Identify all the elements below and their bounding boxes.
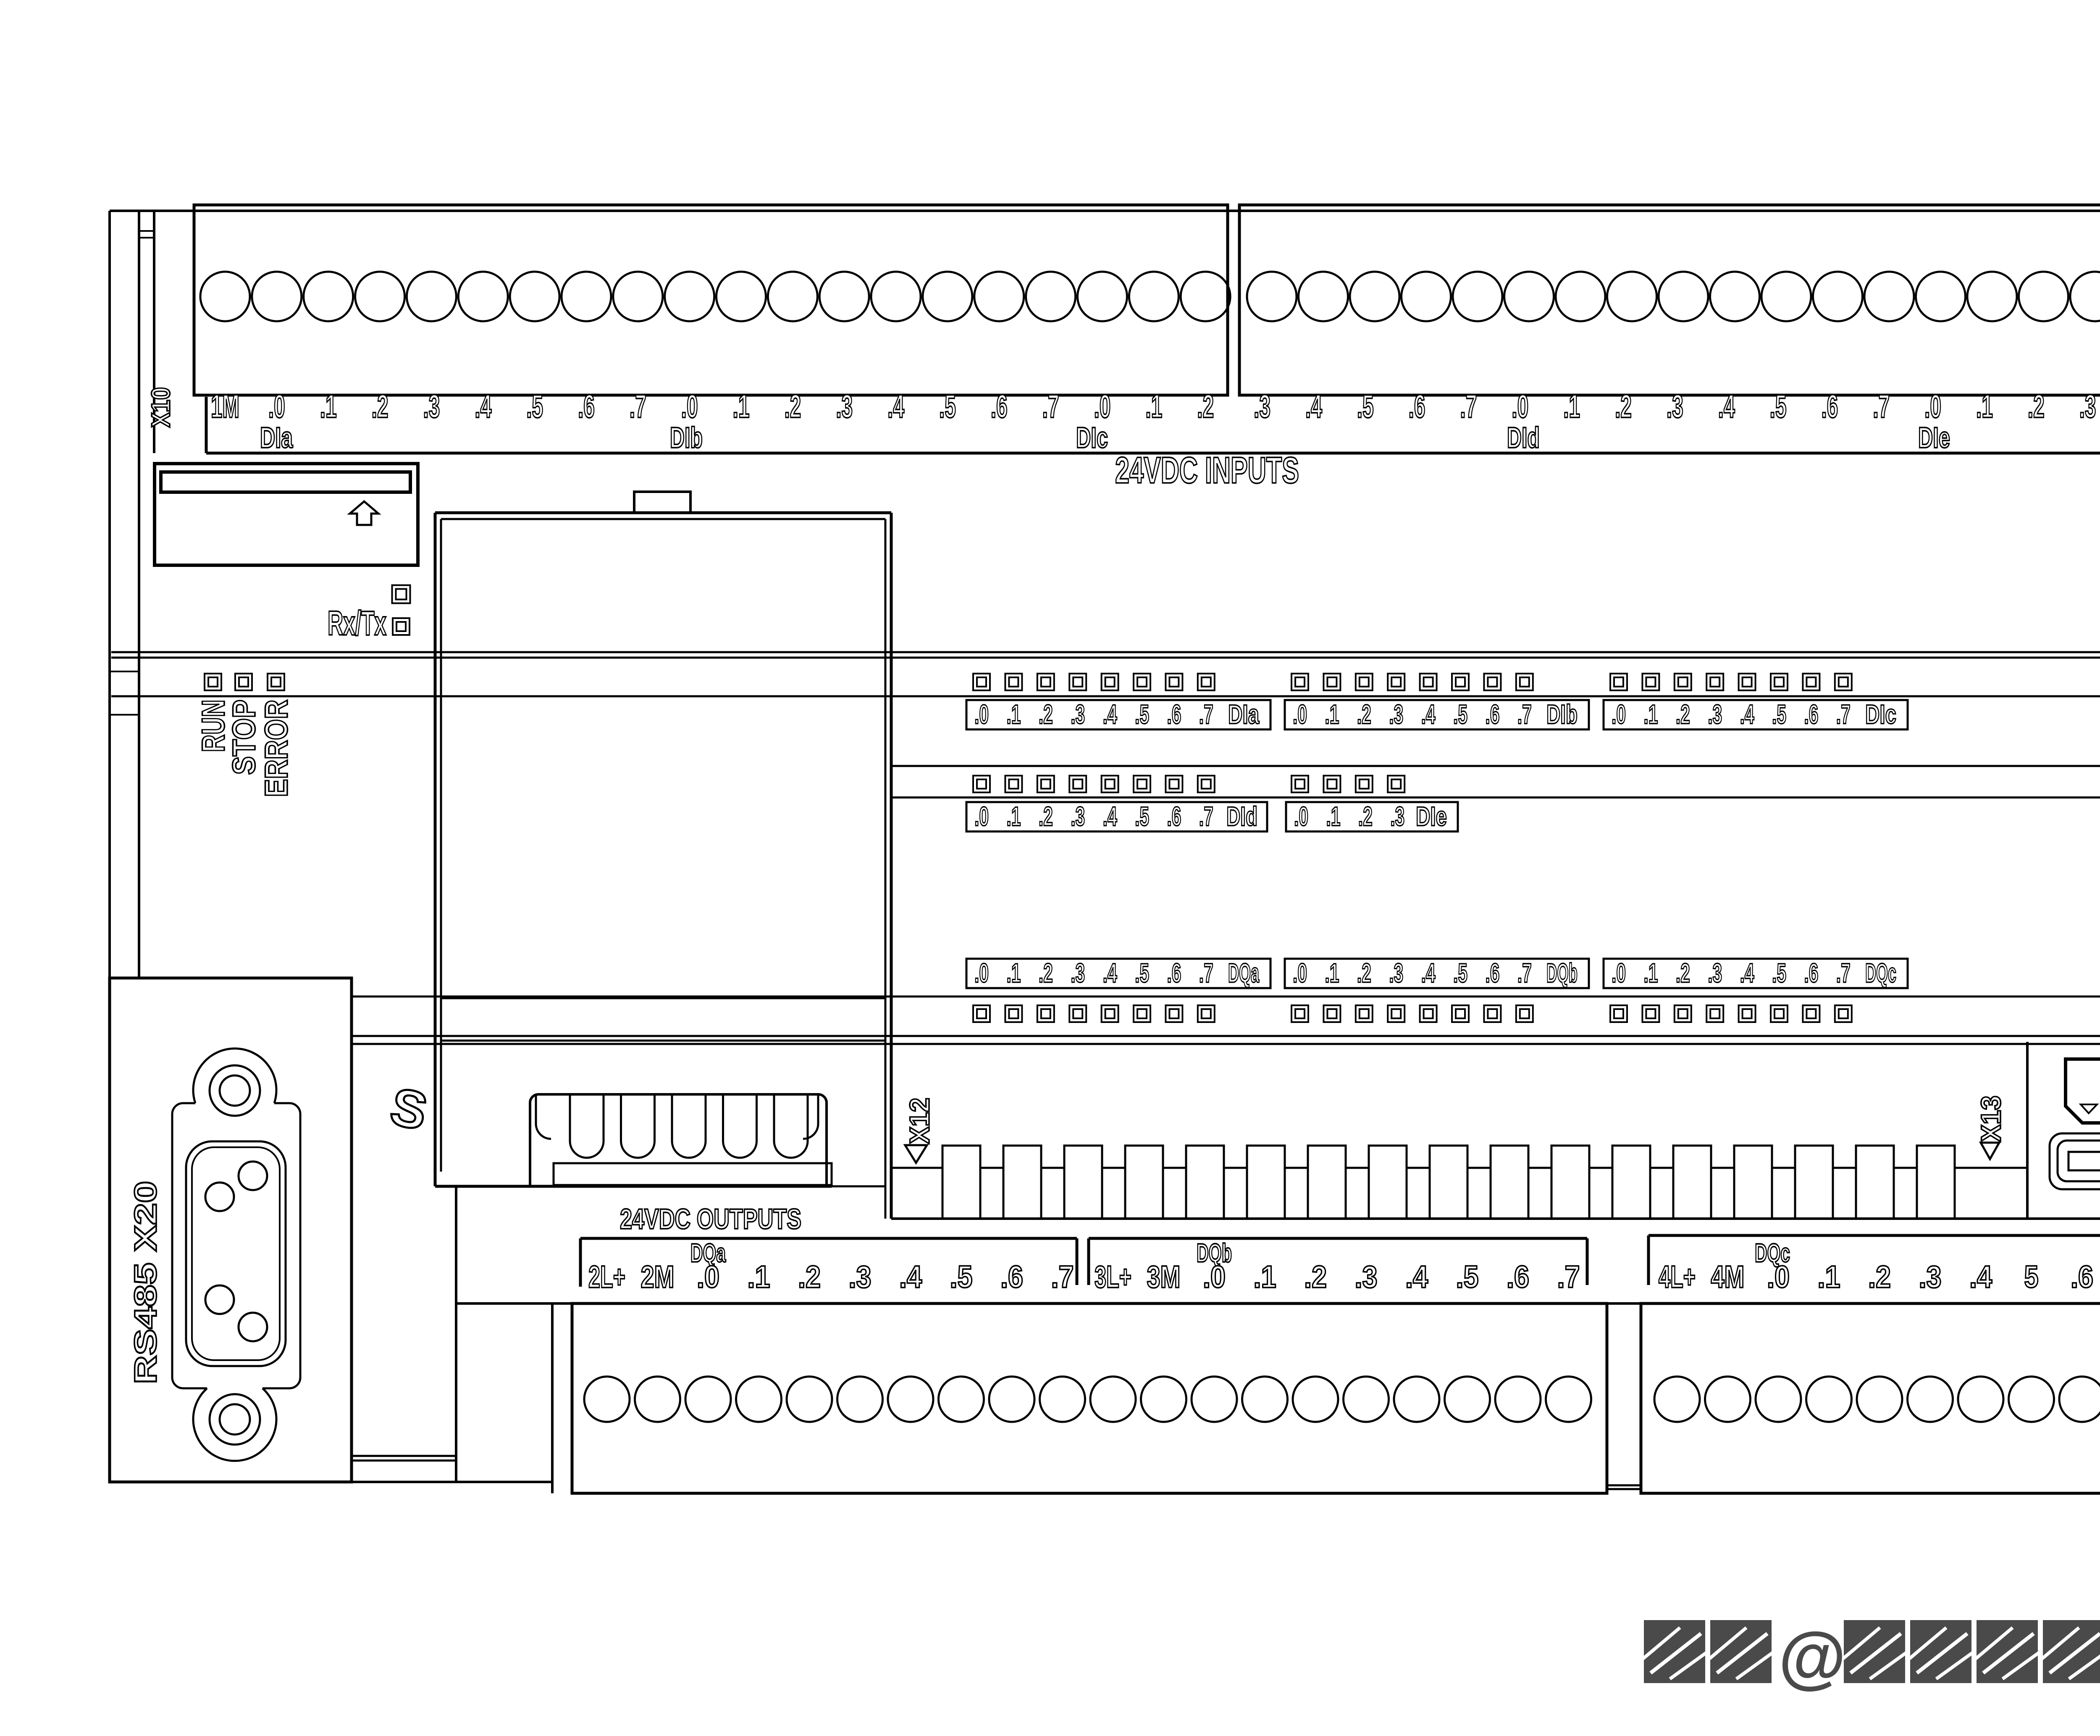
svg-text:.7: .7 bbox=[1557, 1259, 1580, 1294]
svg-text:.2: .2 bbox=[798, 1259, 821, 1294]
svg-text:.0: .0 bbox=[697, 1259, 719, 1294]
svg-text:DIb: DIb bbox=[670, 421, 703, 454]
svg-text:.3: .3 bbox=[1389, 958, 1403, 988]
svg-text:.1: .1 bbox=[1006, 801, 1021, 831]
svg-text:.3: .3 bbox=[1919, 1259, 1942, 1294]
svg-text:.5: .5 bbox=[1135, 958, 1149, 988]
svg-text:.3: .3 bbox=[1071, 958, 1085, 988]
svg-text:.0: .0 bbox=[1293, 958, 1307, 988]
svg-text:.3: .3 bbox=[2079, 388, 2096, 425]
svg-text:.1: .1 bbox=[1643, 699, 1658, 729]
svg-text:DId: DId bbox=[1507, 421, 1540, 454]
svg-text:2M: 2M bbox=[641, 1259, 675, 1294]
svg-text:.2: .2 bbox=[1357, 958, 1371, 988]
svg-text:.5: .5 bbox=[1456, 1259, 1479, 1294]
svg-text:DIc: DIc bbox=[1076, 421, 1108, 454]
svg-text:DIe: DIe bbox=[1918, 421, 1950, 454]
svg-text:.6: .6 bbox=[1167, 958, 1181, 988]
svg-text:.2: .2 bbox=[1357, 699, 1371, 729]
svg-text:.0: .0 bbox=[1612, 699, 1626, 729]
svg-text:.7: .7 bbox=[1199, 801, 1213, 831]
svg-text:.3: .3 bbox=[1708, 958, 1722, 988]
svg-text:@: @ bbox=[1779, 1618, 1846, 1695]
svg-text:.7: .7 bbox=[1517, 958, 1532, 988]
svg-text:.2: .2 bbox=[2028, 388, 2045, 425]
svg-text:.6: .6 bbox=[578, 388, 595, 425]
svg-text:.1: .1 bbox=[1006, 699, 1021, 729]
svg-text:.0: .0 bbox=[1203, 1259, 1226, 1294]
svg-text:DId: DId bbox=[1226, 801, 1257, 831]
svg-text:.6: .6 bbox=[1804, 699, 1818, 729]
svg-text:.0: .0 bbox=[1767, 1259, 1790, 1294]
svg-text:.7: .7 bbox=[1051, 1259, 1074, 1294]
svg-text:.3: .3 bbox=[423, 388, 440, 425]
svg-text:.2: .2 bbox=[1039, 699, 1053, 729]
svg-text:.5: .5 bbox=[526, 388, 543, 425]
svg-text:.7: .7 bbox=[1042, 388, 1059, 425]
svg-text:.2: .2 bbox=[1304, 1259, 1327, 1294]
svg-text:.7: .7 bbox=[1460, 388, 1477, 425]
svg-text:.5: .5 bbox=[1453, 699, 1467, 729]
svg-text:DQa: DQa bbox=[1228, 958, 1259, 988]
svg-text:.5: .5 bbox=[1135, 801, 1149, 831]
svg-text:.1: .1 bbox=[1818, 1259, 1840, 1294]
svg-text:.0: .0 bbox=[974, 699, 989, 729]
svg-text:.4: .4 bbox=[887, 388, 904, 425]
svg-text:.1: .1 bbox=[733, 388, 750, 425]
svg-text:24VDC INPUTS: 24VDC INPUTS bbox=[1115, 449, 1299, 491]
svg-text:.6: .6 bbox=[1821, 388, 1838, 425]
svg-text:.7: .7 bbox=[1199, 958, 1213, 988]
svg-text:.4: .4 bbox=[1103, 958, 1117, 988]
svg-text:.2: .2 bbox=[1197, 388, 1214, 425]
svg-text:.0: .0 bbox=[1924, 388, 1941, 425]
svg-text:.3: .3 bbox=[849, 1259, 871, 1294]
svg-text:X13: X13 bbox=[1975, 1096, 2006, 1142]
svg-text:.4: .4 bbox=[1421, 958, 1436, 988]
svg-text:.2: .2 bbox=[1039, 801, 1053, 831]
svg-text:.3: .3 bbox=[1708, 699, 1722, 729]
svg-text:DIb: DIb bbox=[1546, 699, 1578, 729]
svg-text:.1: .1 bbox=[748, 1259, 770, 1294]
svg-text:DQb: DQb bbox=[1546, 958, 1578, 988]
svg-text:.0: .0 bbox=[1293, 699, 1307, 729]
svg-text:.4: .4 bbox=[1305, 388, 1322, 425]
svg-text:.5: .5 bbox=[1772, 958, 1786, 988]
svg-text:STOP: STOP bbox=[226, 700, 262, 775]
svg-text:X10: X10 bbox=[147, 387, 176, 427]
svg-text:.0: .0 bbox=[1294, 801, 1308, 831]
svg-text:.2: .2 bbox=[784, 388, 801, 425]
svg-text:.4: .4 bbox=[1103, 699, 1117, 729]
svg-text:.7: .7 bbox=[1199, 699, 1213, 729]
svg-text:.3: .3 bbox=[1389, 699, 1403, 729]
svg-text:.7: .7 bbox=[1836, 699, 1851, 729]
svg-text:.4: .4 bbox=[1718, 388, 1735, 425]
svg-text:.4: .4 bbox=[475, 388, 491, 425]
svg-text:.1: .1 bbox=[320, 388, 337, 425]
svg-text:.3: .3 bbox=[1355, 1259, 1378, 1294]
svg-text:.2: .2 bbox=[1358, 801, 1373, 831]
svg-text:DIa: DIa bbox=[1228, 699, 1259, 729]
svg-text:.6: .6 bbox=[1167, 699, 1181, 729]
svg-text:.0: .0 bbox=[974, 801, 989, 831]
svg-text:.6: .6 bbox=[2071, 1259, 2093, 1294]
svg-text:.1: .1 bbox=[1326, 801, 1340, 831]
svg-text:.4: .4 bbox=[899, 1259, 922, 1294]
svg-text:.2: .2 bbox=[1676, 699, 1690, 729]
svg-text:.4: .4 bbox=[1103, 801, 1117, 831]
svg-text:RS485 X20: RS485 X20 bbox=[128, 1181, 163, 1384]
svg-text:DQc: DQc bbox=[1865, 958, 1896, 988]
svg-text:.7: .7 bbox=[1873, 388, 1890, 425]
svg-text:4M: 4M bbox=[1711, 1259, 1745, 1294]
svg-text:.3: .3 bbox=[836, 388, 853, 425]
svg-text:.3: .3 bbox=[1071, 801, 1085, 831]
svg-text:.2: .2 bbox=[1676, 958, 1690, 988]
svg-text:DIc: DIc bbox=[1865, 699, 1896, 729]
svg-text:.1: .1 bbox=[1643, 958, 1658, 988]
svg-text:DIe: DIe bbox=[1416, 801, 1447, 831]
svg-text:.4: .4 bbox=[1405, 1259, 1428, 1294]
svg-text:.0: .0 bbox=[1512, 388, 1528, 425]
svg-text:.1: .1 bbox=[1325, 699, 1339, 729]
svg-text:.5: .5 bbox=[1770, 388, 1787, 425]
svg-text:.0: .0 bbox=[1094, 388, 1110, 425]
svg-text:.4: .4 bbox=[1740, 958, 1754, 988]
svg-text:3L+: 3L+ bbox=[1095, 1259, 1131, 1294]
svg-text:X12: X12 bbox=[904, 1098, 935, 1144]
svg-text:.4: .4 bbox=[1421, 699, 1436, 729]
svg-text:.6: .6 bbox=[991, 388, 1008, 425]
svg-text:.6: .6 bbox=[1485, 699, 1499, 729]
svg-text:.3: .3 bbox=[1390, 801, 1404, 831]
svg-text:.2: .2 bbox=[1039, 958, 1053, 988]
svg-text:.5: .5 bbox=[939, 388, 956, 425]
svg-text:3M: 3M bbox=[1147, 1259, 1181, 1294]
svg-text:.5: .5 bbox=[1135, 699, 1149, 729]
svg-text:.2: .2 bbox=[1868, 1259, 1891, 1294]
svg-text:.1: .1 bbox=[1563, 388, 1580, 425]
svg-text:.7: .7 bbox=[1836, 958, 1851, 988]
svg-text:ERROR: ERROR bbox=[259, 700, 294, 797]
svg-text:.7: .7 bbox=[630, 388, 646, 425]
svg-text:.6: .6 bbox=[1804, 958, 1818, 988]
svg-text:.5: .5 bbox=[1357, 388, 1374, 425]
svg-text:.0: .0 bbox=[681, 388, 698, 425]
svg-text:.0: .0 bbox=[974, 958, 989, 988]
svg-text:.1: .1 bbox=[1254, 1259, 1276, 1294]
svg-text:.5: .5 bbox=[1772, 699, 1786, 729]
svg-text:.2: .2 bbox=[1615, 388, 1632, 425]
svg-text:.5: .5 bbox=[1453, 958, 1467, 988]
svg-text:Rx/Tx: Rx/Tx bbox=[328, 604, 386, 642]
svg-text:.0: .0 bbox=[268, 388, 285, 425]
svg-text:.3: .3 bbox=[1071, 699, 1085, 729]
svg-text:.1: .1 bbox=[1325, 958, 1339, 988]
svg-text:2L+: 2L+ bbox=[588, 1259, 625, 1294]
svg-text:.6: .6 bbox=[1409, 388, 1425, 425]
svg-text:DIa: DIa bbox=[260, 421, 293, 454]
svg-text:.7: .7 bbox=[1517, 699, 1532, 729]
svg-text:.6: .6 bbox=[1167, 801, 1181, 831]
svg-text:.0: .0 bbox=[1612, 958, 1626, 988]
svg-text:.3: .3 bbox=[1254, 388, 1270, 425]
svg-text:5: 5 bbox=[2024, 1259, 2039, 1294]
svg-text:.4: .4 bbox=[1740, 699, 1754, 729]
svg-text:.1: .1 bbox=[1976, 388, 1993, 425]
svg-text:4L+: 4L+ bbox=[1659, 1259, 1696, 1294]
svg-text:.1: .1 bbox=[1145, 388, 1162, 425]
svg-text:.5: .5 bbox=[950, 1259, 973, 1294]
svg-text:.3: .3 bbox=[1667, 388, 1683, 425]
svg-text:1M: 1M bbox=[211, 388, 239, 425]
svg-text:.2: .2 bbox=[372, 388, 388, 425]
svg-text:24VDC OUTPUTS: 24VDC OUTPUTS bbox=[620, 1203, 801, 1235]
svg-text:.6: .6 bbox=[1507, 1259, 1529, 1294]
svg-text:.4: .4 bbox=[1969, 1259, 1992, 1294]
svg-text:.6: .6 bbox=[1000, 1259, 1023, 1294]
svg-text:.1: .1 bbox=[1006, 958, 1021, 988]
svg-text:.6: .6 bbox=[1485, 958, 1499, 988]
